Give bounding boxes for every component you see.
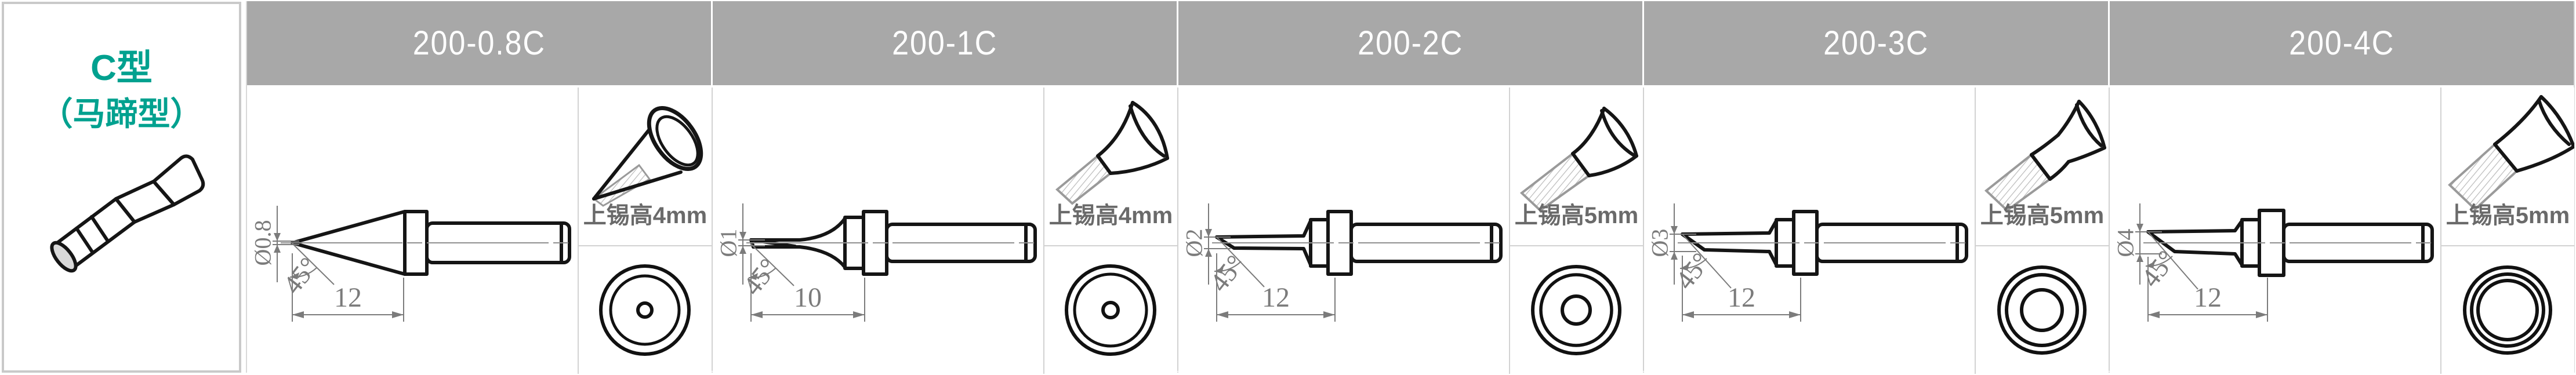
technical-drawing-cell: Ø2 45° 12	[1178, 88, 1509, 374]
photo-subcolumn: 上锡高5mm	[1976, 88, 2109, 374]
tip-photo-illustration	[1976, 91, 2109, 210]
tip-models-table: 200-0.8C 200-1C 200-2C 200-3C 200-4C	[246, 1, 2575, 373]
tip-end-view-drawing	[1976, 248, 2109, 373]
c-type-tip-illustration	[35, 145, 209, 279]
photo-subcolumn: 上锡高5mm	[1510, 88, 1643, 374]
product-spec-sheet: C型 （马蹄型） 200-0.8C 200-1C 200-2C 200-3C 2…	[0, 0, 2576, 375]
technical-drawing-cell: Ø0.8 45° 12	[247, 88, 578, 374]
model-column: Ø4 45° 12	[2110, 88, 2574, 374]
model-column: Ø3 45° 12	[1644, 88, 2109, 374]
length-dimension-label: 12	[1728, 282, 1755, 313]
model-column: Ø2 45° 12	[1178, 88, 1643, 374]
model-column: Ø0.8 45° 12	[247, 88, 712, 374]
tip-photo-cell: 上锡高5mm	[1510, 88, 1643, 245]
technical-drawing-cell: Ø1 45° 10	[713, 88, 1043, 374]
model-column: Ø1 45° 10	[713, 88, 1177, 374]
tip-technical-drawing: Ø4 45° 12	[2110, 88, 2440, 371]
tip-photo-cell: 上锡高4mm	[579, 88, 712, 245]
tin-height-label: 上锡高4mm	[1044, 196, 1177, 230]
tip-photo-cell: 上锡高5mm	[2441, 88, 2574, 245]
diameter-dimension-label: Ø3	[1647, 229, 1673, 257]
photo-subcolumn: 上锡高4mm	[579, 88, 712, 374]
tip-technical-drawing: Ø3 45° 12	[1644, 88, 1975, 371]
diameter-dimension-label: Ø0.8	[250, 220, 276, 266]
angle-dimension-label: 45°	[737, 253, 783, 300]
technical-drawing-cell: Ø4 45° 12	[2110, 88, 2440, 374]
photo-subcolumn: 上锡高5mm	[2441, 88, 2574, 374]
tip-end-view-drawing	[1510, 248, 1643, 373]
tip-photo-illustration	[579, 91, 712, 210]
tip-end-view-cell	[1510, 246, 1643, 374]
diameter-dimension-label: Ø2	[1181, 229, 1207, 257]
angle-dimension-label: 45°	[277, 252, 324, 299]
angle-dimension-label: 45°	[1670, 247, 1716, 294]
diameter-dimension-label: Ø4	[2113, 229, 2139, 257]
tip-end-view-drawing	[2441, 248, 2574, 373]
type-legend-panel: C型 （马蹄型）	[2, 2, 241, 373]
tip-photo-illustration	[1510, 91, 1643, 210]
tip-end-view-cell	[1976, 246, 2109, 374]
tip-technical-drawing: Ø0.8 45° 12	[247, 88, 578, 371]
tin-height-label: 上锡高4mm	[579, 196, 712, 230]
model-body-row: Ø0.8 45° 12	[247, 88, 2574, 371]
tip-photo-illustration	[2441, 91, 2574, 210]
length-dimension-label: 12	[2194, 282, 2222, 313]
technical-drawing-cell: Ø3 45° 12	[1644, 88, 1975, 374]
tip-photo-illustration	[1044, 91, 1177, 210]
diameter-dimension-label: Ø1	[716, 229, 742, 257]
column-header-200-3C: 200-3C	[1644, 1, 2108, 85]
model-header-row: 200-0.8C 200-1C 200-2C 200-3C 200-4C	[247, 1, 2574, 85]
tin-height-label: 上锡高5mm	[1976, 196, 2109, 230]
tip-end-view-cell	[2441, 246, 2574, 374]
column-header-200-2C: 200-2C	[1178, 1, 1642, 85]
tip-end-view-cell	[579, 246, 712, 374]
type-subtitle: （马蹄型）	[4, 98, 239, 130]
tip-end-view-drawing	[579, 248, 712, 373]
column-header-200-1C: 200-1C	[713, 1, 1177, 85]
photo-subcolumn: 上锡高4mm	[1044, 88, 1177, 374]
length-dimension-label: 10	[794, 282, 822, 313]
tip-photo-cell: 上锡高4mm	[1044, 88, 1177, 245]
length-dimension-label: 12	[334, 282, 362, 313]
type-title: C型	[4, 50, 239, 86]
tip-technical-drawing: Ø1 45° 10	[713, 88, 1043, 371]
column-header-200-4C: 200-4C	[2110, 1, 2574, 85]
column-header-200-0.8C: 200-0.8C	[247, 1, 711, 85]
tip-end-view-drawing	[1044, 248, 1177, 373]
tip-end-view-cell	[1044, 246, 1177, 374]
tip-technical-drawing: Ø2 45° 12	[1178, 88, 1509, 371]
tin-height-label: 上锡高5mm	[2441, 196, 2574, 230]
length-dimension-label: 12	[1262, 282, 1290, 313]
tip-photo-cell: 上锡高5mm	[1976, 88, 2109, 245]
tin-height-label: 上锡高5mm	[1510, 196, 1643, 230]
